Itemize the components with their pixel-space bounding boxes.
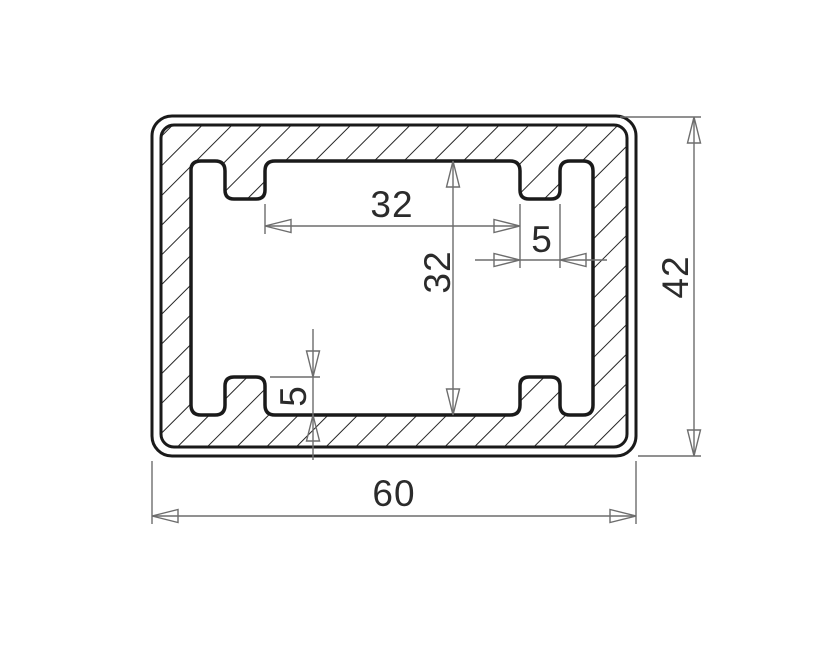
dimension-outer-width: 60 [152, 461, 636, 524]
drawing-canvas: 32 5 32 5 [0, 0, 813, 645]
dim-label-rib-width: 5 [531, 219, 553, 260]
dimension-outer-height: 42 [620, 117, 701, 456]
dim-label-rib-height: 5 [273, 385, 314, 407]
dim-label-outer-width: 60 [372, 473, 415, 514]
dim-label-outer-height: 42 [655, 255, 696, 298]
dimension-inner-height: 32 [417, 161, 460, 415]
dim-label-inner-width: 32 [370, 184, 413, 225]
dimension-rib-width: 5 [475, 204, 607, 268]
section-hatching [161, 125, 627, 447]
dimension-inner-width: 32 [265, 184, 520, 268]
dim-label-inner-height: 32 [417, 250, 458, 293]
profile-section [152, 116, 636, 456]
profile-cross-section-drawing: 32 5 32 5 [0, 0, 813, 645]
